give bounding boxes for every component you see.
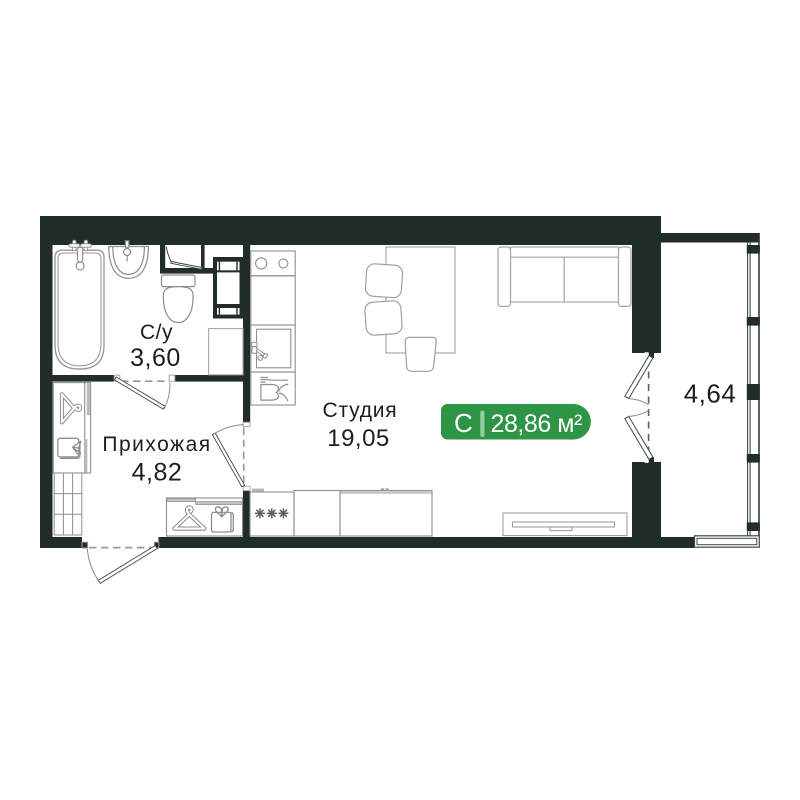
svg-text:Студия: Студия (323, 399, 398, 422)
svg-text:С/у: С/у (140, 321, 173, 344)
svg-text:19,05: 19,05 (327, 425, 390, 452)
svg-text:4,82: 4,82 (132, 459, 183, 487)
svg-text:4,64: 4,64 (684, 379, 737, 409)
svg-text:С: С (454, 408, 473, 438)
svg-text:3,60: 3,60 (130, 344, 181, 372)
svg-text:Прихожая: Прихожая (102, 433, 211, 456)
svg-text:28,86 м²: 28,86 м² (491, 410, 583, 438)
